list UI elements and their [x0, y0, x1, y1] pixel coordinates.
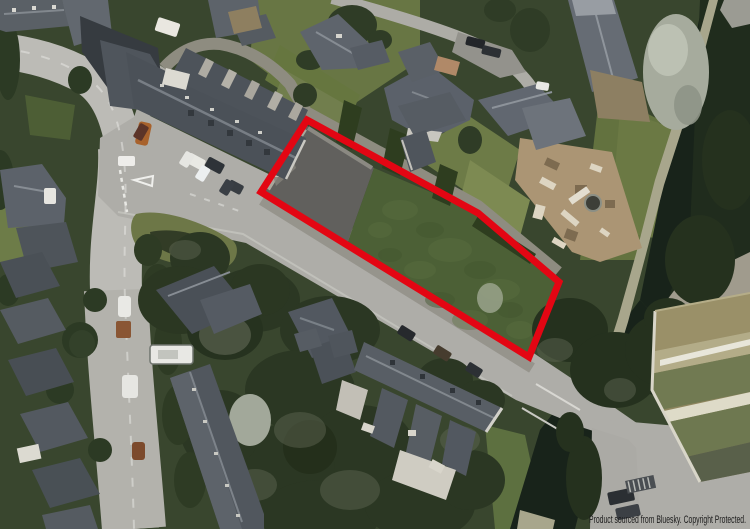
svg-text:Product sourced from Bluesky.: Product sourced from Bluesky. Copyright … [589, 514, 746, 526]
